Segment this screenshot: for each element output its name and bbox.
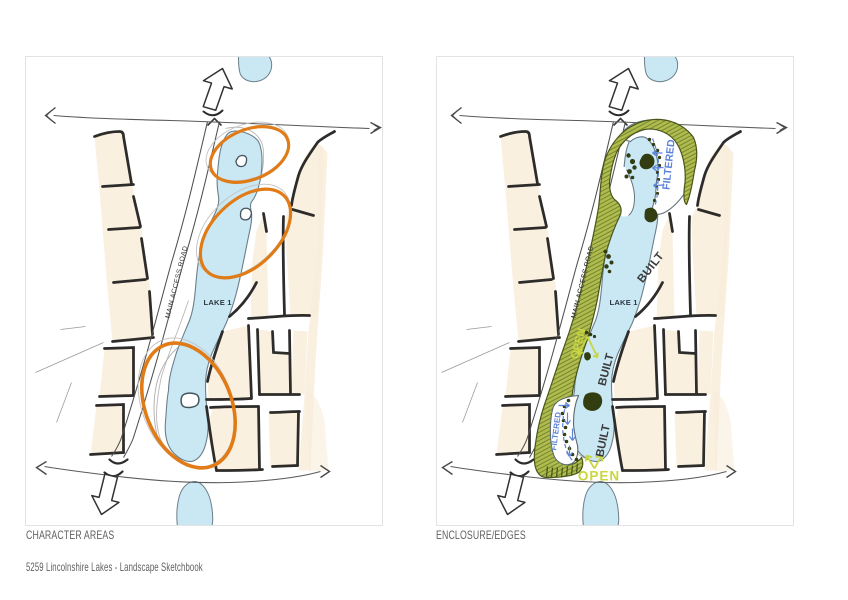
svg-text:OPEN: OPEN xyxy=(578,469,620,484)
